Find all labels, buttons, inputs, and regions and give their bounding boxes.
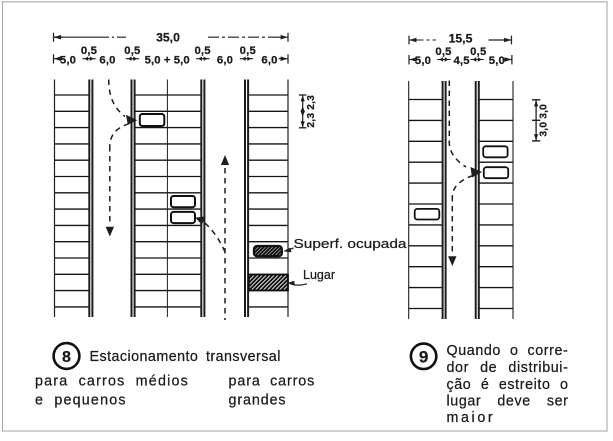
svg-text:5,0: 5,0 (489, 55, 505, 67)
svg-text:0,5: 0,5 (240, 45, 256, 57)
svg-text:6,0: 6,0 (99, 54, 115, 66)
svg-text:0,5: 0,5 (194, 45, 210, 57)
svg-text:Lugar: Lugar (303, 267, 336, 282)
svg-text:2,3 2,3: 2,3 2,3 (306, 95, 317, 128)
svg-text:maior: maior (447, 410, 496, 426)
svg-text:dor de distribui-: dor de distribui- (447, 360, 569, 376)
svg-text:Estacionamento transversal: Estacionamento transversal (90, 349, 281, 365)
svg-text:9: 9 (419, 347, 428, 366)
svg-text:Superf. ocupada: Superf. ocupada (294, 236, 408, 251)
svg-text:ção é estreito o: ção é estreito o (447, 377, 569, 393)
svg-text:lugar deve ser: lugar deve ser (447, 393, 569, 409)
svg-text:0,5: 0,5 (81, 45, 97, 57)
svg-text:0,5: 0,5 (435, 46, 451, 58)
svg-text:4,5: 4,5 (453, 55, 469, 67)
svg-text:0,5: 0,5 (470, 46, 486, 58)
svg-text:6,0: 6,0 (261, 54, 277, 66)
svg-text:8: 8 (62, 349, 71, 366)
svg-text:Quando o corre-: Quando o corre- (447, 343, 569, 359)
svg-text:15,5: 15,5 (449, 31, 473, 45)
svg-text:5,0: 5,0 (415, 55, 431, 67)
svg-text:para carros: para carros (229, 374, 316, 390)
svg-text:3,0 3,0: 3,0 3,0 (539, 104, 550, 137)
svg-text:5,0 + 5,0: 5,0 + 5,0 (145, 54, 190, 66)
svg-text:35,0: 35,0 (156, 31, 180, 45)
svg-text:e pequenos: e pequenos (35, 393, 127, 409)
svg-text:0,5: 0,5 (124, 45, 140, 57)
svg-text:5,0: 5,0 (60, 54, 76, 66)
svg-text:6,0: 6,0 (217, 54, 233, 66)
svg-text:para carros médios: para carros médios (35, 374, 189, 390)
svg-text:grandes: grandes (229, 393, 287, 409)
